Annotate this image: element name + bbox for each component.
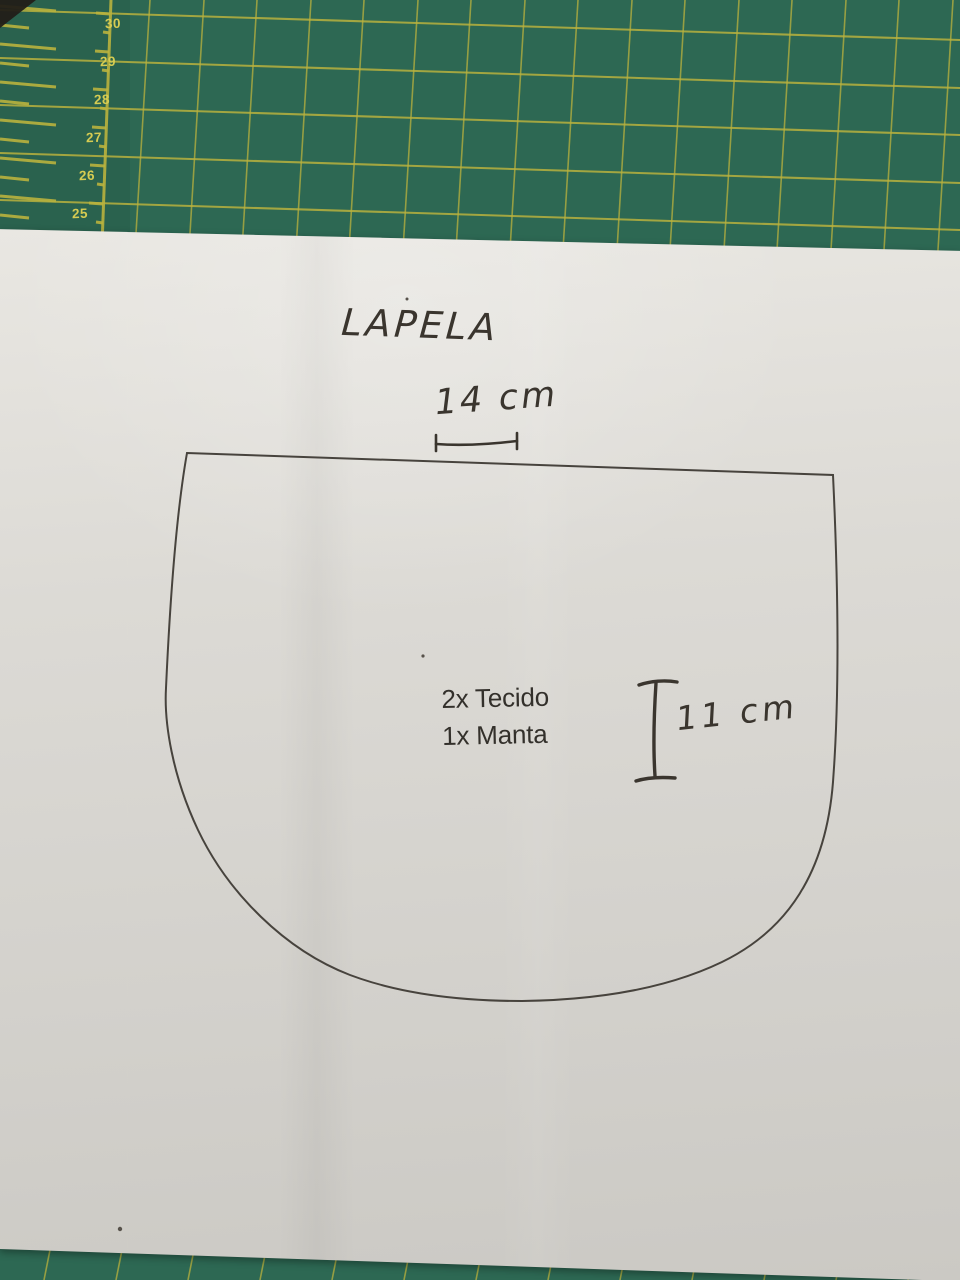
cut-instructions: 2x Tecido 1x Manta — [441, 679, 550, 755]
paper-speck — [406, 298, 409, 301]
pattern-drawing — [0, 0, 960, 1280]
paper-speck — [421, 654, 424, 657]
cut-instruction-fabric: 2x Tecido — [441, 679, 549, 718]
pattern-paper: LAPELA 14 cm 11 cm 2x Tecido 1x Manta — [0, 0, 960, 1280]
paper-speck — [118, 1227, 122, 1231]
width-dimension-mark — [436, 433, 517, 451]
height-dimension-mark — [636, 681, 677, 781]
pattern-title: LAPELA — [336, 301, 505, 349]
photo-scene: 30 29 28 27 26 25 — [0, 0, 960, 1280]
paper-shadow-wrap: LAPELA 14 cm 11 cm 2x Tecido 1x Manta — [0, 0, 960, 1280]
cut-instruction-batting: 1x Manta — [442, 716, 550, 755]
